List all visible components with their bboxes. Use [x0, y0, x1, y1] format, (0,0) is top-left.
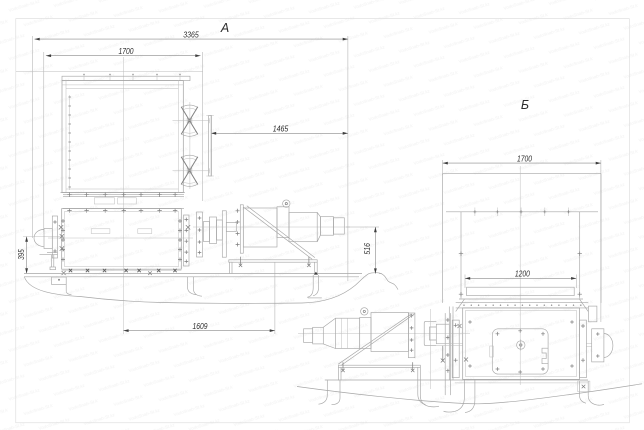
svg-text:395: 395: [17, 249, 26, 260]
svg-text:1465: 1465: [273, 123, 289, 133]
svg-text:516: 516: [362, 243, 372, 255]
svg-text:1700: 1700: [119, 46, 134, 56]
svg-text:1200: 1200: [515, 269, 530, 279]
svg-text:A: A: [220, 21, 229, 35]
svg-text:1700: 1700: [517, 153, 532, 163]
svg-text:3365: 3365: [183, 29, 199, 39]
svg-text:Б: Б: [521, 98, 529, 112]
svg-text:1609: 1609: [193, 321, 208, 331]
